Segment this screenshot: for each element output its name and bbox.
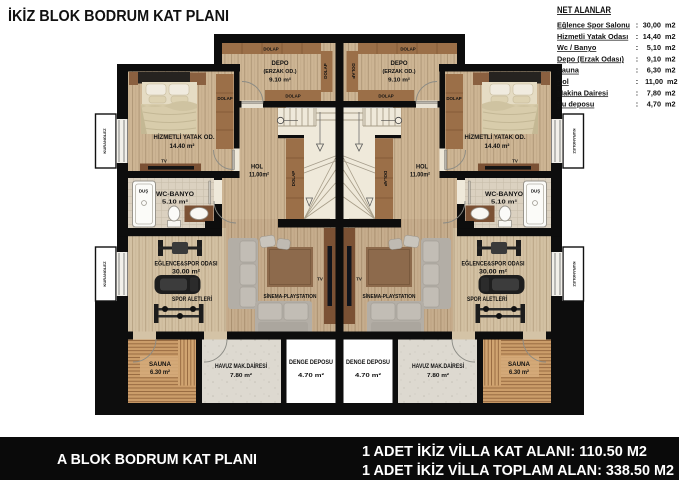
svg-text:1 ADET İKİZ VİLLA TOPLAM ALAN:: 1 ADET İKİZ VİLLA TOPLAM ALAN: 338.50 M2 [362,462,674,479]
svg-text:A BLOK BODRUM KAT PLANI: A BLOK BODRUM KAT PLANI [57,452,257,468]
svg-text:7.80 m²: 7.80 m² [427,372,449,379]
svg-text::: : [636,54,638,63]
svg-text:Sauna: Sauna [557,66,580,75]
svg-text:m2: m2 [667,77,678,86]
svg-text:DUŞ: DUŞ [531,189,540,194]
svg-text:SAUNA: SAUNA [149,361,171,368]
svg-text:WC-BANYO: WC-BANYO [485,192,523,198]
svg-text:9.10 m²: 9.10 m² [269,77,291,84]
svg-text:Wc / Banyo: Wc / Banyo [557,43,597,52]
svg-text:HİZMETLİ YATAK OD.: HİZMETLİ YATAK OD. [154,133,215,141]
svg-text:Hol: Hol [557,77,569,86]
svg-text:Eğlence Spor Salonu: Eğlence Spor Salonu [557,21,630,30]
svg-text:(ERZAK OD.): (ERZAK OD.) [383,69,416,75]
svg-text:DEPO: DEPO [272,60,289,67]
svg-text:SİNEMA-PLAYSTATION: SİNEMA-PLAYSTATION [264,293,317,300]
svg-text:KURANGLEZ: KURANGLEZ [572,261,577,287]
svg-text:DOLAP: DOLAP [446,96,461,101]
svg-text:EĞLENCE&SPOR ODASI: EĞLENCE&SPOR ODASI [155,259,218,268]
svg-text:4,70: 4,70 [647,100,661,109]
svg-text:m2: m2 [665,43,676,52]
svg-text:30.00 m²: 30.00 m² [479,269,507,276]
svg-text:TV: TV [512,159,518,164]
svg-text:11,00: 11,00 [645,77,663,86]
svg-text:DOLAP: DOLAP [285,94,300,99]
svg-text:7.80 m²: 7.80 m² [230,372,252,379]
svg-text:WC-BANYO: WC-BANYO [156,192,194,198]
svg-text::: : [636,21,638,30]
svg-text:DUŞ: DUŞ [139,189,148,194]
svg-text:KURANGLEZ: KURANGLEZ [572,128,577,154]
svg-text:TV: TV [161,159,167,164]
svg-text:m2: m2 [665,88,676,97]
svg-text:5.10 m²: 5.10 m² [162,199,188,206]
svg-text:11.00m²: 11.00m² [249,172,269,179]
svg-text:DOLAP: DOLAP [323,63,328,78]
svg-text:7,80: 7,80 [647,88,661,97]
svg-text:m2: m2 [665,54,676,63]
svg-text:SAUNA: SAUNA [508,361,530,368]
svg-text:m2: m2 [665,66,676,75]
svg-text:1 ADET İKİZ VİLLA KAT ALANI: 1: 1 ADET İKİZ VİLLA KAT ALANI: 110.50 M2 [362,443,647,460]
svg-text:6.30 m²: 6.30 m² [150,369,170,376]
svg-text:6.30 m²: 6.30 m² [509,369,529,376]
svg-text:HOL: HOL [251,164,263,171]
svg-text::: : [636,77,638,86]
svg-text:Depo (Erzak Odası): Depo (Erzak Odası) [557,54,624,63]
svg-text:5,10: 5,10 [647,43,661,52]
svg-text:Hizmetli Yatak Odası: Hizmetli Yatak Odası [557,32,628,41]
svg-text:DEPO: DEPO [391,60,408,67]
svg-text:4.70 m²: 4.70 m² [355,372,381,379]
svg-text:DOLAP: DOLAP [291,171,296,186]
svg-text:EĞLENCE&SPOR ODASI: EĞLENCE&SPOR ODASI [462,259,525,268]
svg-text:30,00: 30,00 [643,21,661,30]
svg-text:HAVUZ MAK.DAİRESİ: HAVUZ MAK.DAİRESİ [215,363,267,370]
svg-text:m2: m2 [665,21,676,30]
svg-text:DOLAP: DOLAP [378,94,393,99]
svg-text:14.40 m²: 14.40 m² [485,143,510,150]
svg-text:SİNEMA-PLAYSTATION: SİNEMA-PLAYSTATION [363,293,416,300]
svg-text:9.10 m²: 9.10 m² [388,77,410,84]
svg-text:4.70 m²: 4.70 m² [298,372,324,379]
svg-text:14.40 m²: 14.40 m² [170,143,195,150]
svg-text:(ERZAK OD.): (ERZAK OD.) [264,69,297,75]
svg-text::: : [636,43,638,52]
svg-text:5.10 m²: 5.10 m² [491,199,517,206]
svg-text:30.00 m²: 30.00 m² [172,269,200,276]
svg-text:9,10: 9,10 [647,54,661,63]
svg-text:HAVUZ MAK.DAİRESİ: HAVUZ MAK.DAİRESİ [412,363,464,370]
svg-text::: : [636,100,638,109]
svg-text:DOLAP: DOLAP [351,63,356,78]
svg-text:TV: TV [356,277,362,282]
svg-text:DOLAP: DOLAP [217,96,232,101]
svg-text:14,40: 14,40 [643,32,661,41]
svg-text:NET ALANLAR: NET ALANLAR [557,5,612,15]
svg-text:SPOR ALETLERİ: SPOR ALETLERİ [467,296,507,303]
svg-text:6,30: 6,30 [647,66,661,75]
svg-text:m2: m2 [665,100,676,109]
svg-text:DOLAP: DOLAP [400,47,415,52]
svg-text::: : [636,88,638,97]
svg-text:KURANGLEZ: KURANGLEZ [102,261,107,287]
svg-text:11.00m²: 11.00m² [410,172,430,179]
svg-text:DENGE DEPOSU: DENGE DEPOSU [346,360,390,366]
svg-text::: : [636,66,638,75]
svg-text:HOL: HOL [416,164,428,171]
svg-text:Su deposu: Su deposu [557,100,594,109]
svg-text::: : [636,32,638,41]
svg-text:m2: m2 [665,32,676,41]
svg-text:DENGE DEPOSU: DENGE DEPOSU [289,360,333,366]
svg-text:Makina Dairesi: Makina Dairesi [557,88,608,97]
svg-text:DOLAP: DOLAP [383,171,388,186]
svg-text:İKİZ BLOK BODRUM KAT PLANI: İKİZ BLOK BODRUM KAT PLANI [8,8,229,25]
svg-text:SPOR ALETLERİ: SPOR ALETLERİ [172,296,212,303]
svg-text:HİZMETLİ YATAK OD.: HİZMETLİ YATAK OD. [465,133,526,141]
svg-text:TV: TV [317,277,323,282]
svg-text:KURANGLEZ: KURANGLEZ [102,128,107,154]
svg-text:DOLAP: DOLAP [263,47,278,52]
